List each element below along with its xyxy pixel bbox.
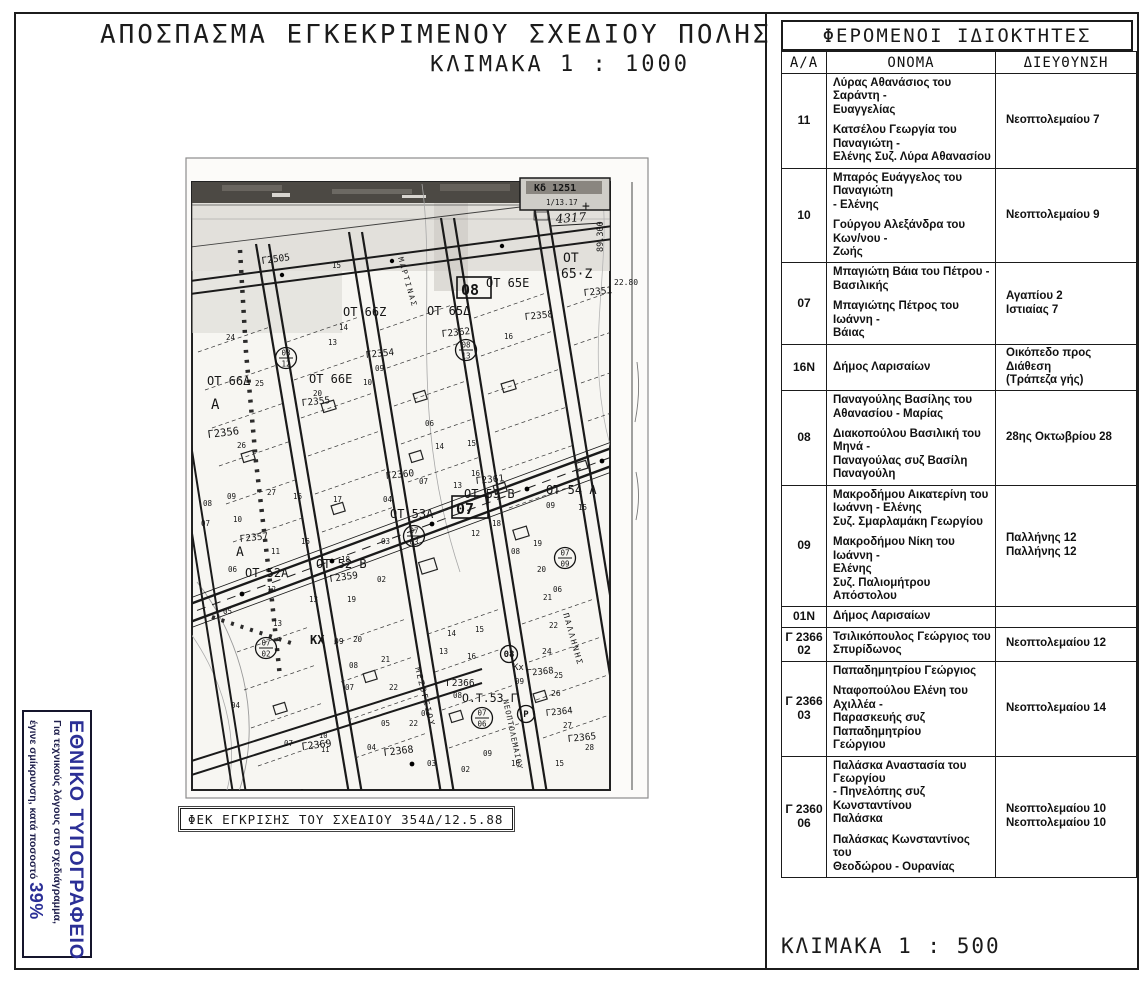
svg-text:ΚΧ: ΚΧ — [310, 633, 325, 647]
svg-text:ΟΤ: ΟΤ — [563, 251, 579, 266]
svg-text:15: 15 — [578, 503, 587, 512]
svg-text:04: 04 — [367, 743, 377, 752]
svg-text:10: 10 — [511, 759, 521, 768]
col-header-aa: Α/Α — [782, 52, 827, 74]
svg-text:28: 28 — [585, 743, 595, 752]
svg-text:27: 27 — [563, 721, 572, 730]
svg-text:27: 27 — [267, 488, 276, 497]
svg-text:07: 07 — [560, 549, 569, 558]
svg-text:07: 07 — [409, 527, 418, 536]
svg-text:09: 09 — [515, 677, 524, 686]
svg-text:ΟΤ 66Ε: ΟΤ 66Ε — [309, 372, 352, 386]
owner-id-cell: Γ 2366 02 — [782, 627, 827, 661]
svg-text:Α: Α — [211, 397, 220, 413]
svg-text:07: 07 — [419, 477, 428, 486]
svg-text:25: 25 — [255, 379, 264, 388]
svg-text:21: 21 — [543, 593, 552, 602]
svg-text:07: 07 — [345, 683, 354, 692]
svg-text:ΟΤ 54 Α: ΟΤ 54 Α — [546, 483, 597, 497]
table-row: 09Μακροδήμου Αικατερίνη του Ιωάννη - Ελέ… — [782, 485, 1137, 607]
svg-text:15: 15 — [475, 625, 484, 634]
svg-text:10: 10 — [319, 732, 327, 740]
svg-text:15: 15 — [332, 261, 341, 270]
svg-text:07: 07 — [201, 519, 210, 528]
svg-text:15: 15 — [555, 759, 564, 768]
svg-text:26: 26 — [551, 689, 561, 698]
svg-text:07: 07 — [456, 500, 474, 518]
owner-address-cell — [996, 607, 1137, 627]
svg-text:08: 08 — [349, 661, 359, 670]
owner-address-cell: Νεοπτολεμαίου 7 — [996, 74, 1137, 169]
owner-name-cell: Λύρας Αθανάσιος του Σαράντη - Ευαγγελίας… — [827, 74, 996, 169]
svg-text:11: 11 — [321, 746, 329, 754]
svg-text:08: 08 — [461, 341, 471, 350]
vertical-divider — [765, 12, 767, 968]
svg-text:15: 15 — [467, 439, 476, 448]
svg-text:09: 09 — [546, 501, 555, 510]
map-canvas: Κδ 12511/13.174317+89.30022.80ΟΤ65·ΖΟΤ 6… — [182, 152, 652, 802]
svg-text:24: 24 — [542, 647, 552, 656]
svg-text:02: 02 — [461, 765, 470, 774]
owner-name-cell: Μακροδήμου Αικατερίνη του Ιωάννη - Ελένη… — [827, 485, 996, 607]
svg-text:ΟΤ 53 Β: ΟΤ 53 Β — [464, 487, 515, 501]
owner-address-cell: Αγαπίου 2Ιστιαίας 7 — [996, 263, 1137, 344]
stamp-title: ΕΘΝΙΚΟ ΤΥΠΟΓΡΑΦΕΙΟ — [64, 720, 87, 948]
svg-text:24: 24 — [226, 333, 236, 342]
fek-approval-box: ΦΕΚ ΕΓΚΡΙΣΗΣ ΤΟΥ ΣΧΕΔΙΟΥ 354Δ/12.5.88 — [180, 808, 513, 830]
owner-id-cell: Γ 2366 03 — [782, 661, 827, 756]
owner-name-cell: Παλάσκα Αναστασία του Γεωργίου - Πηνελόπ… — [827, 756, 996, 878]
svg-text:26: 26 — [237, 441, 247, 450]
svg-text:25: 25 — [554, 671, 563, 680]
svg-text:09: 09 — [375, 364, 384, 373]
svg-text:08: 08 — [461, 281, 479, 299]
table-scale-label: ΚΛΙΜΑΚΑ 1 : 500 — [781, 934, 1001, 958]
svg-text:ΟΤ 65Δ: ΟΤ 65Δ — [427, 304, 471, 318]
map-scale-label: ΚΛΙΜΑΚΑ 1 : 1000 — [368, 52, 690, 77]
owner-id-cell: 07 — [782, 263, 827, 344]
svg-text:65·Ζ: 65·Ζ — [561, 267, 592, 282]
svg-text:04: 04 — [231, 701, 241, 710]
svg-text:ΟΤ 66Ζ: ΟΤ 66Ζ — [343, 305, 386, 319]
owner-name-cell: Τσιλικόπουλος Γεώργιος του Σπυρίδωνος — [827, 627, 996, 661]
svg-text:19: 19 — [347, 595, 356, 604]
svg-text:20: 20 — [353, 635, 363, 644]
svg-text:ΟΤ 65Ε: ΟΤ 65Ε — [486, 276, 529, 290]
svg-text:16: 16 — [293, 492, 303, 501]
svg-text:22: 22 — [549, 621, 558, 630]
owner-address-cell: Οικόπεδο προς Διάθεση (Τράπεζα γής) — [996, 344, 1137, 390]
svg-text:Α: Α — [236, 545, 244, 560]
svg-text:13: 13 — [273, 619, 282, 628]
owner-id-cell: 16Ν — [782, 344, 827, 390]
table-row: 07Μπαγιώτη Βάια του Πέτρου - ΒασιλικήςΜπ… — [782, 263, 1137, 344]
stamp-note-line2: έγινε σμίκρυνση, κατά ποσοστό 39% — [23, 720, 49, 948]
svg-text:ΟΤ 52Α: ΟΤ 52Α — [245, 566, 289, 580]
owner-name-cell: Δήμος Λαρισαίων — [827, 607, 996, 627]
svg-text:02: 02 — [377, 575, 386, 584]
owner-id-cell: 01Ν — [782, 607, 827, 627]
svg-text:22: 22 — [389, 683, 398, 692]
svg-text:15: 15 — [301, 537, 310, 546]
page-title: ΑΠΟΣΠΑΣΜΑ ΕΓΚΕΚΡΙΜΕΝΟΥ ΣΧΕΔΙΟΥ ΠΟΛΗΣ — [100, 20, 700, 50]
svg-text:09: 09 — [334, 637, 344, 646]
owner-address-cell: 28ης Οκτωβρίου 28 — [996, 391, 1137, 486]
svg-text:22.80: 22.80 — [614, 278, 638, 287]
city-plan-map: Κδ 12511/13.174317+89.30022.80ΟΤ65·ΖΟΤ 6… — [182, 152, 652, 802]
owner-name-cell: Δήμος Λαρισαίων — [827, 344, 996, 390]
svg-text:02: 02 — [261, 650, 270, 659]
svg-text:06: 06 — [425, 419, 435, 428]
owner-address-cell: Νεοπτολεμαίου 9 — [996, 168, 1137, 263]
svg-text:14: 14 — [435, 442, 445, 451]
svg-text:11: 11 — [271, 547, 280, 556]
svg-text:03: 03 — [427, 759, 436, 768]
svg-text:04: 04 — [383, 495, 393, 504]
svg-text:07: 07 — [477, 709, 486, 718]
svg-text:1/13.17: 1/13.17 — [546, 198, 578, 207]
svg-text:14: 14 — [339, 323, 349, 332]
svg-text:ΟΤ 52 Β: ΟΤ 52 Β — [316, 557, 367, 571]
owners-table-title: ΦΕΡΟΜΕΝΟΙ ΙΔΙΟΚΤΗΤΕΣ — [781, 20, 1133, 51]
svg-text:12: 12 — [471, 529, 480, 538]
svg-text:09: 09 — [483, 749, 492, 758]
svg-text:14: 14 — [447, 629, 457, 638]
table-row: 11Λύρας Αθανάσιος του Σαράντη - Ευαγγελί… — [782, 74, 1137, 169]
owner-address-cell: Παλλήνης 12Παλλήνης 12 — [996, 485, 1137, 607]
svg-text:Κδ 1251: Κδ 1251 — [534, 183, 576, 194]
svg-text:05: 05 — [223, 607, 232, 616]
table-row: 16ΝΔήμος ΛαρισαίωνΟικόπεδο προς Διάθεση … — [782, 344, 1137, 390]
svg-text:18: 18 — [492, 519, 502, 528]
svg-text:20: 20 — [537, 565, 547, 574]
svg-text:08: 08 — [281, 349, 291, 358]
owner-name-cell: Μπαρός Ευάγγελος του Παναγιώτη - ΕλένηςΓ… — [827, 168, 996, 263]
owner-id-cell: 09 — [782, 485, 827, 607]
owner-id-cell: Γ 2360 06 — [782, 756, 827, 878]
svg-text:10: 10 — [363, 378, 373, 387]
svg-text:16: 16 — [467, 652, 477, 661]
svg-text:09: 09 — [227, 492, 236, 501]
table-row: 08Παναγούλης Βασίλης του Αθανασίου - Μαρ… — [782, 391, 1137, 486]
svg-text:05: 05 — [381, 719, 390, 728]
svg-text:+: + — [582, 199, 590, 214]
svg-text:06: 06 — [228, 565, 238, 574]
svg-text:ΟΤ 53Α: ΟΤ 53Α — [390, 507, 434, 521]
svg-text:13: 13 — [461, 352, 470, 361]
svg-text:16: 16 — [504, 332, 514, 341]
stamp-percent: 39% — [26, 882, 46, 920]
document-page: ΑΠΟΣΠΑΣΜΑ ΕΓΚΕΚΡΙΜΕΝΟΥ ΣΧΕΔΙΟΥ ΠΟΛΗΣ ΚΛΙ… — [0, 0, 1143, 981]
owner-name-cell: Παναγούλης Βασίλης του Αθανασίου - Μαρία… — [827, 391, 996, 486]
owner-id-cell: 11 — [782, 74, 827, 169]
svg-text:06: 06 — [553, 585, 563, 594]
svg-text:03: 03 — [409, 538, 418, 547]
table-row: Γ 2366 02Τσιλικόπουλος Γεώργιος του Σπυρ… — [782, 627, 1137, 661]
owners-table: ΦΕΡΟΜΕΝΟΙ ΙΔΙΟΚΤΗΤΕΣ Α/Α ΟΝΟΜΑ ΔΙΕΥΘΥΝΣΗ… — [781, 20, 1133, 878]
table-row: Γ 2360 06Παλάσκα Αναστασία του Γεωργίου … — [782, 756, 1137, 878]
svg-text:07: 07 — [284, 739, 293, 748]
owners-table-body: 11Λύρας Αθανάσιος του Σαράντη - Ευαγγελί… — [782, 74, 1137, 878]
svg-text:13: 13 — [328, 338, 337, 347]
svg-text:19: 19 — [533, 539, 542, 548]
svg-text:Γ2366: Γ2366 — [446, 678, 475, 689]
svg-text:22: 22 — [409, 719, 418, 728]
svg-text:89.300: 89.300 — [596, 221, 606, 252]
svg-text:13: 13 — [309, 595, 318, 604]
svg-text:06: 06 — [477, 720, 487, 729]
svg-text:ΟΤ 66Δ: ΟΤ 66Δ — [207, 374, 251, 388]
owner-address-cell: Νεοπτολεμαίου 10Νεοπτολεμαίου 10 — [996, 756, 1137, 878]
table-row: 10Μπαρός Ευάγγελος του Παναγιώτη - Ελένη… — [782, 168, 1137, 263]
table-row: 01ΝΔήμος Λαρισαίων — [782, 607, 1137, 627]
svg-text:12: 12 — [267, 585, 276, 594]
svg-text:08: 08 — [504, 650, 515, 660]
svg-text:08: 08 — [511, 547, 521, 556]
svg-text:21: 21 — [381, 655, 390, 664]
owners-header-row: Α/Α ΟΝΟΜΑ ΔΙΕΥΘΥΝΣΗ — [782, 52, 1137, 74]
stamp-note-line1: Για τεχνικούς λόγους στο σχεδιάγραμμα, — [49, 720, 64, 948]
svg-text:Ρ: Ρ — [523, 710, 529, 720]
col-header-address: ΔΙΕΥΘΥΝΣΗ — [996, 52, 1137, 74]
table-row: Γ 2366 03Παπαδημητρίου ΓεώργιοςΝταφοπούλ… — [782, 661, 1137, 756]
printing-office-stamp: ΕΘΝΙΚΟ ΤΥΠΟΓΡΑΦΕΙΟ Για τεχνικούς λόγους … — [22, 710, 92, 958]
svg-text:08: 08 — [203, 499, 213, 508]
owner-address-cell: Νεοπτολεμαίου 12 — [996, 627, 1137, 661]
col-header-name: ΟΝΟΜΑ — [827, 52, 996, 74]
svg-text:12: 12 — [281, 360, 290, 369]
owner-address-cell: Νεοπτολεμαίου 14 — [996, 661, 1137, 756]
owner-name-cell: Παπαδημητρίου ΓεώργιοςΝταφοπούλου Ελένη … — [827, 661, 996, 756]
svg-text:03: 03 — [381, 537, 390, 546]
svg-text:13: 13 — [439, 647, 448, 656]
owner-id-cell: 08 — [782, 391, 827, 486]
svg-text:07: 07 — [261, 639, 270, 648]
svg-text:09: 09 — [560, 560, 569, 569]
owner-id-cell: 10 — [782, 168, 827, 263]
svg-text:10: 10 — [233, 515, 243, 524]
svg-text:13: 13 — [453, 481, 462, 490]
owner-name-cell: Μπαγιώτη Βάια του Πέτρου - ΒασιλικήςΜπαγ… — [827, 263, 996, 344]
svg-text:17: 17 — [333, 495, 342, 504]
